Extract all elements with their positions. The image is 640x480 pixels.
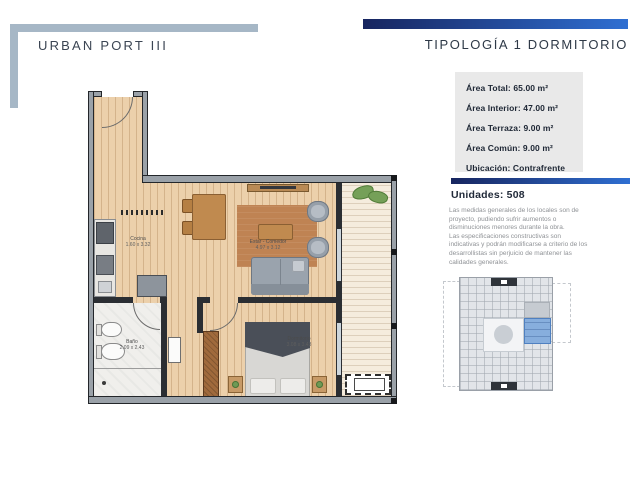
ac-unit-icon (354, 378, 385, 391)
disclaimer-paragraph-2: Las especificaciones constructivas son i… (449, 233, 589, 267)
steel-accent-bar-horizontal (10, 24, 258, 32)
bed-pillow (280, 378, 306, 394)
area-interior: Área Interior: 47.00 m² (466, 102, 583, 122)
wall (94, 297, 133, 303)
wall (391, 175, 397, 404)
typology-title: TIPOLOGÍA 1 DORMITORIO (340, 37, 628, 55)
wall (88, 396, 397, 404)
key-plan-dashed-wing (552, 283, 571, 343)
entrance-gap (501, 280, 507, 284)
wall (238, 297, 342, 303)
fridge-cabinet (137, 275, 167, 297)
shower-drain-icon (102, 381, 106, 385)
courtyard-tree-icon (494, 325, 513, 344)
wardrobe (203, 331, 219, 397)
bedroom-label: Dormitorio 3.08 x 3.43 (276, 336, 322, 348)
column-post (391, 398, 397, 404)
kitchen-sink-icon (98, 281, 112, 293)
area-total: Área Total: 65.00 m² (466, 82, 583, 102)
coffee-table (258, 224, 293, 240)
disclaimer-paragraph-1: Las medidas generales de los locales son… (449, 207, 589, 233)
bathroom-label: Baño 2.09 x 2.43 (106, 339, 158, 351)
plant-icon (316, 381, 323, 388)
project-title: URBAN PORT III (38, 38, 318, 56)
oven-icon (96, 255, 114, 275)
column-post (391, 175, 397, 181)
dining-table (192, 194, 226, 240)
area-comun: Área Común: 9.00 m² (466, 142, 583, 162)
key-plan (443, 278, 571, 392)
highlighted-unit (524, 318, 551, 344)
floor-plan: Cocina 1.60 x 3.32 Estar - Comedor 4.97 … (88, 91, 398, 406)
area-terraza: Área Terraza: 9.00 m² (466, 122, 583, 142)
wall (197, 303, 203, 333)
blue-accent-bar-top (363, 19, 628, 29)
tv-icon (260, 186, 296, 189)
bedroom-window (337, 323, 341, 375)
key-plan-gray-unit (524, 302, 550, 318)
bidet-icon (101, 322, 122, 337)
wall (142, 175, 397, 183)
kitchen-label: Cocina 1.60 x 3.32 (112, 236, 164, 248)
living-label: Estar - Comedor 4.97 x 3.12 (238, 239, 298, 251)
wall (161, 303, 167, 396)
brochure-page: { "header": { "left_title": "URBAN PORT … (0, 0, 640, 480)
units-label: Unidades: 508 (451, 189, 611, 201)
wall (142, 91, 148, 181)
shower-partition (94, 368, 161, 369)
plant-icon (232, 381, 239, 388)
armchair-icon (307, 237, 329, 258)
sliding-glass-door (337, 229, 341, 281)
column-post (391, 249, 397, 255)
armchair-icon (307, 201, 329, 222)
laundry-closet (168, 337, 181, 363)
key-plan-dashed-wing (443, 281, 460, 387)
upper-cabinet-dashes (121, 210, 165, 215)
entrance-gap (501, 384, 507, 388)
terrace-floor (342, 183, 391, 396)
column-post (391, 323, 397, 329)
legal-disclaimer: Las medidas generales de los locales son… (449, 207, 589, 267)
wall (88, 91, 94, 404)
steel-accent-bar-vertical (10, 24, 18, 108)
bed-pillow (250, 378, 276, 394)
area-info-panel: Área Total: 65.00 m² Área Interior: 47.0… (455, 72, 583, 172)
sofa-icon (251, 257, 309, 295)
blue-accent-bar-mid (451, 178, 630, 184)
